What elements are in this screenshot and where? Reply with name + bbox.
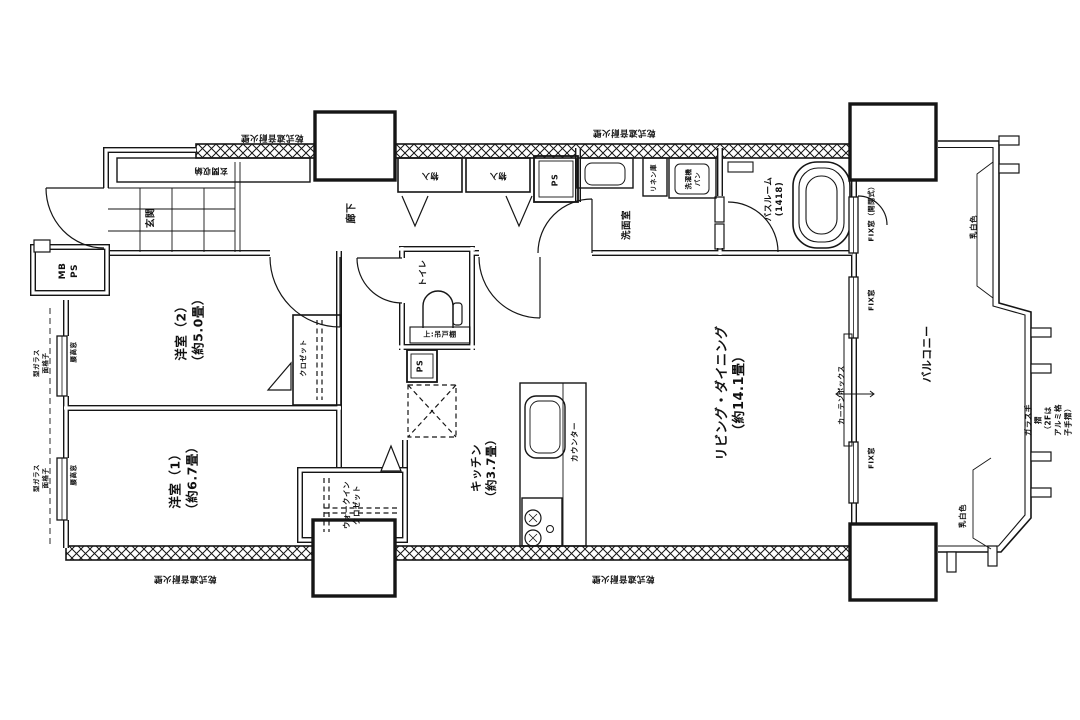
label-frosted-top: 乳白色 <box>969 215 979 239</box>
label-fix-window-1: FIX窓 <box>867 289 876 311</box>
label-bedroom2: 洋室（2）（約5.0畳） <box>174 292 207 368</box>
kitchen-fixtures <box>520 383 586 546</box>
living-size: （約14.1畳） <box>732 349 747 437</box>
label-firewall-bottom-left: 乾式遮音耐火壁 <box>153 572 216 583</box>
label-patterned-glass-1: 型ガラス 面格子 <box>32 349 49 377</box>
label-waist-window-2: 腰高窓 <box>70 465 79 486</box>
label-washroom: 洗面室 <box>622 210 635 240</box>
dashed-details <box>50 308 456 546</box>
floor-plan-drawing <box>0 0 1080 720</box>
bedroom1-name: 洋室（1） <box>168 447 183 508</box>
label-balcony: バルコニー <box>921 325 936 382</box>
toilet-fixture <box>423 291 462 328</box>
label-washer-pan: 洗濯機 パン <box>684 169 701 190</box>
label-fix-window-2: FIX窓 <box>867 447 876 469</box>
kitchen-name: キッチン <box>469 444 483 492</box>
bathroom-size: (1418) <box>775 182 785 216</box>
label-toilet: トイレ <box>418 259 429 286</box>
label-fix-window-openable: FIX窓（開閉式） <box>867 182 876 241</box>
living-name: リビング・ダイニング <box>715 325 730 460</box>
label-storage-2: 物入 <box>490 170 507 181</box>
bedroom2-name: 洋室（2） <box>174 299 189 360</box>
label-upper-cabinet: 上:吊戸棚 <box>423 330 456 339</box>
label-waist-window-1: 腰高窓 <box>70 342 79 363</box>
label-patterned-glass-2: 型ガラス 面格子 <box>32 464 49 492</box>
label-linen: リネン庫 <box>650 164 659 192</box>
floor-plan: 乾式遮音耐火壁 乾式遮音耐火壁 乾式遮音耐火壁 乾式遮音耐火壁 玄関収納 玄関 … <box>0 0 1080 720</box>
label-bedroom1: 洋室（1）（約6.7畳） <box>168 440 201 516</box>
label-firewall-top-mid: 乾式遮音耐火壁 <box>592 126 655 137</box>
bedroom2-size: （約5.0畳） <box>190 292 205 368</box>
label-bathroom: バスルーム(1418) <box>764 177 786 222</box>
label-counter: カウンター <box>570 422 580 462</box>
label-glass-rail: ガラス手摺 （2Fはアルミ格子手摺） <box>1023 404 1072 436</box>
label-kitchen: キッチン（約3.7畳） <box>469 433 499 503</box>
label-ps-top: PS <box>551 174 562 187</box>
label-curtain-box: カーテンボックス <box>837 365 846 425</box>
balcony-rails <box>938 136 1051 572</box>
closets <box>268 315 401 471</box>
kitchen-size: （約3.7畳） <box>484 433 498 503</box>
label-entrance-storage: 玄関収納 <box>194 165 228 176</box>
label-closet: クロゼット <box>299 339 308 377</box>
label-hallway: 廊下 <box>345 203 358 224</box>
label-frosted-bottom: 乳白色 <box>958 504 968 528</box>
label-firewall-bottom-right: 乾式遮音耐火壁 <box>591 572 654 583</box>
label-entrance: 玄関 <box>146 208 159 228</box>
entrance-tiles <box>108 162 240 252</box>
label-storage-1: 物入 <box>422 170 439 181</box>
label-mb-ps: MB PS <box>58 263 82 280</box>
label-ps-mid: PS <box>416 360 427 373</box>
bathroom-name: バスルーム <box>764 177 774 222</box>
bedroom1-size: （約6.7畳） <box>184 440 199 516</box>
label-living: リビング・ダイニング（約14.1畳） <box>714 325 748 460</box>
label-wic: ウォークイン クロゼット <box>342 481 362 529</box>
label-firewall-top-left: 乾式遮音耐火壁 <box>240 131 303 142</box>
